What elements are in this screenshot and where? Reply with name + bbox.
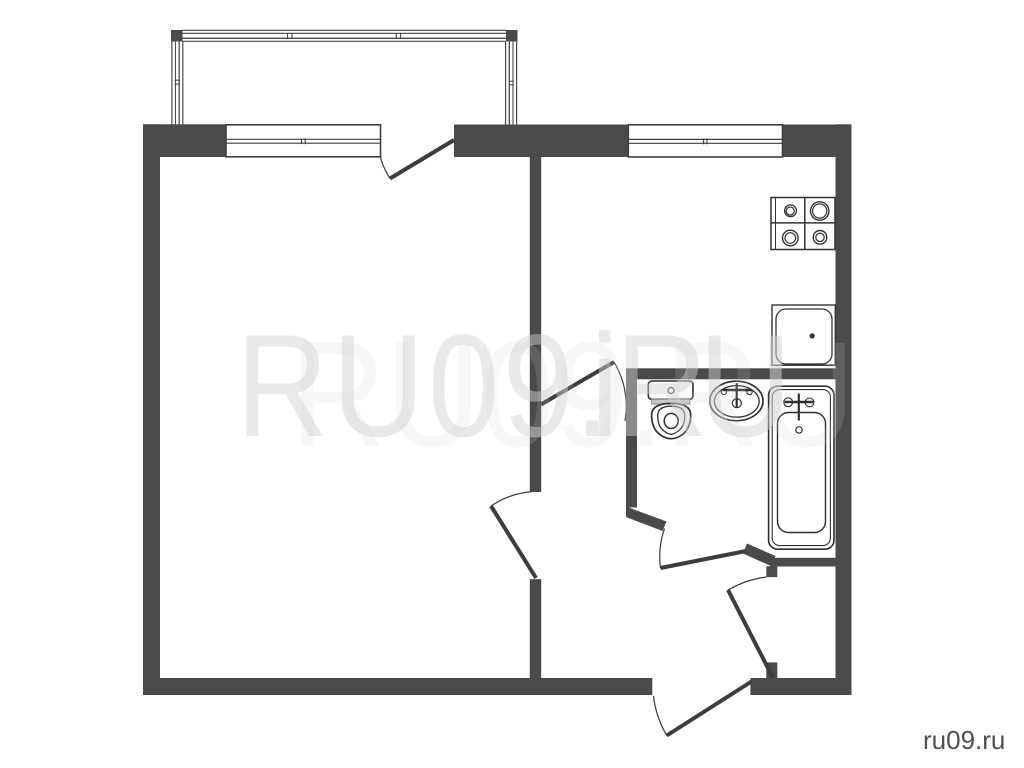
svg-text:RU09: RU09 (236, 305, 577, 467)
svg-text:R: R (615, 305, 708, 467)
svg-text:U: U (699, 305, 792, 467)
